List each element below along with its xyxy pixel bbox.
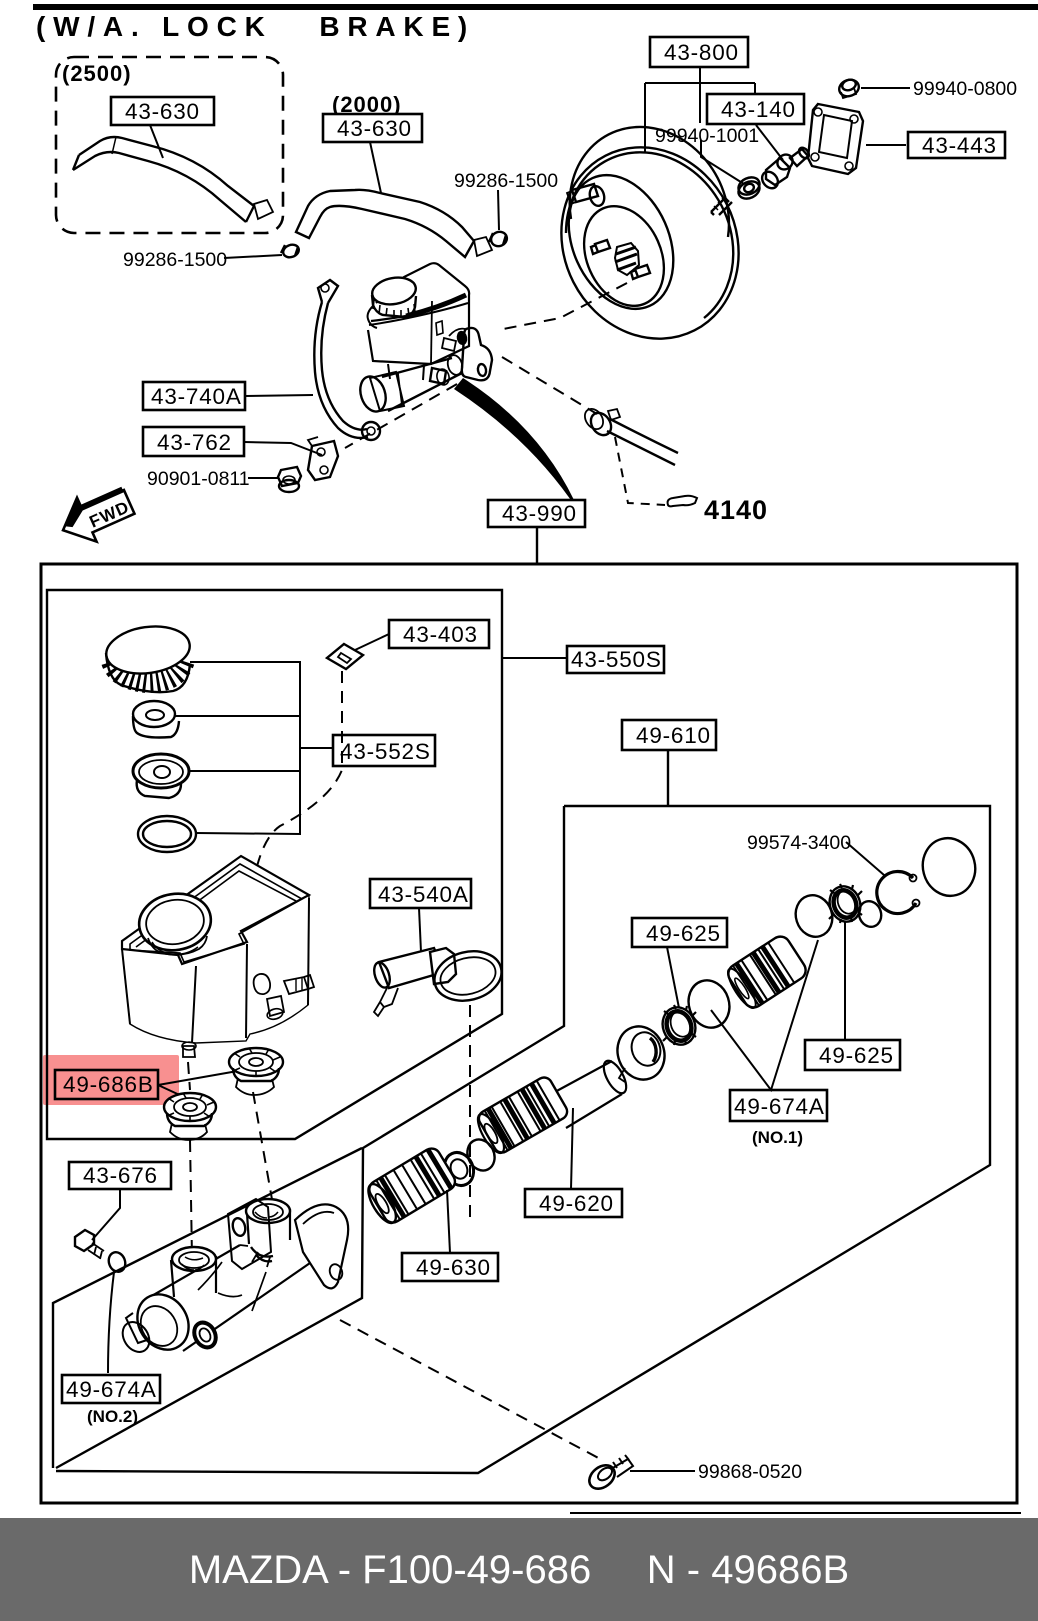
svg-text:43-800: 43-800 (664, 40, 739, 65)
svg-text:(NO.1): (NO.1) (752, 1128, 803, 1147)
svg-text:43-443: 43-443 (922, 133, 997, 158)
svg-text:43-630: 43-630 (337, 116, 412, 141)
svg-text:99574-3400: 99574-3400 (747, 832, 851, 854)
svg-text:49-630: 49-630 (416, 1255, 491, 1280)
svg-text:49-625: 49-625 (646, 921, 721, 946)
svg-text:99286-1500: 99286-1500 (454, 170, 558, 192)
svg-text:49-674A: 49-674A (66, 1377, 157, 1402)
svg-text:43-676: 43-676 (83, 1163, 158, 1188)
svg-text:49-620: 49-620 (539, 1191, 614, 1216)
svg-text:43-552S: 43-552S (340, 739, 431, 764)
svg-text:(NO.2): (NO.2) (87, 1407, 138, 1426)
svg-text:4140: 4140 (704, 495, 768, 525)
svg-text:43-740A: 43-740A (151, 384, 242, 409)
svg-text:43-990: 43-990 (502, 501, 577, 526)
svg-text:99286-1500: 99286-1500 (123, 249, 227, 271)
svg-text:99940-1001: 99940-1001 (655, 125, 759, 147)
svg-text:43-403: 43-403 (403, 622, 478, 647)
svg-text:(W/A. LOCK BRAKE): (W/A. LOCK BRAKE) (36, 11, 475, 42)
svg-text:49-674A: 49-674A (734, 1094, 825, 1119)
svg-text:90901-0811: 90901-0811 (147, 468, 250, 490)
svg-text:43-630: 43-630 (125, 99, 200, 124)
svg-text:43-140: 43-140 (721, 97, 796, 122)
svg-text:99940-0800: 99940-0800 (913, 78, 1017, 100)
svg-text:49-625: 49-625 (819, 1043, 894, 1068)
svg-text:99868-0520: 99868-0520 (698, 1461, 802, 1483)
svg-text:43-550S: 43-550S (571, 647, 662, 672)
svg-text:MAZDA - F100-49-686 N - 49: MAZDA - F100-49-686 N - 49686B (189, 1548, 849, 1592)
svg-text:(2500): (2500) (62, 61, 132, 86)
svg-text:43-540A: 43-540A (378, 882, 469, 907)
svg-text:43-762: 43-762 (157, 430, 232, 455)
svg-text:49-610: 49-610 (636, 723, 711, 748)
